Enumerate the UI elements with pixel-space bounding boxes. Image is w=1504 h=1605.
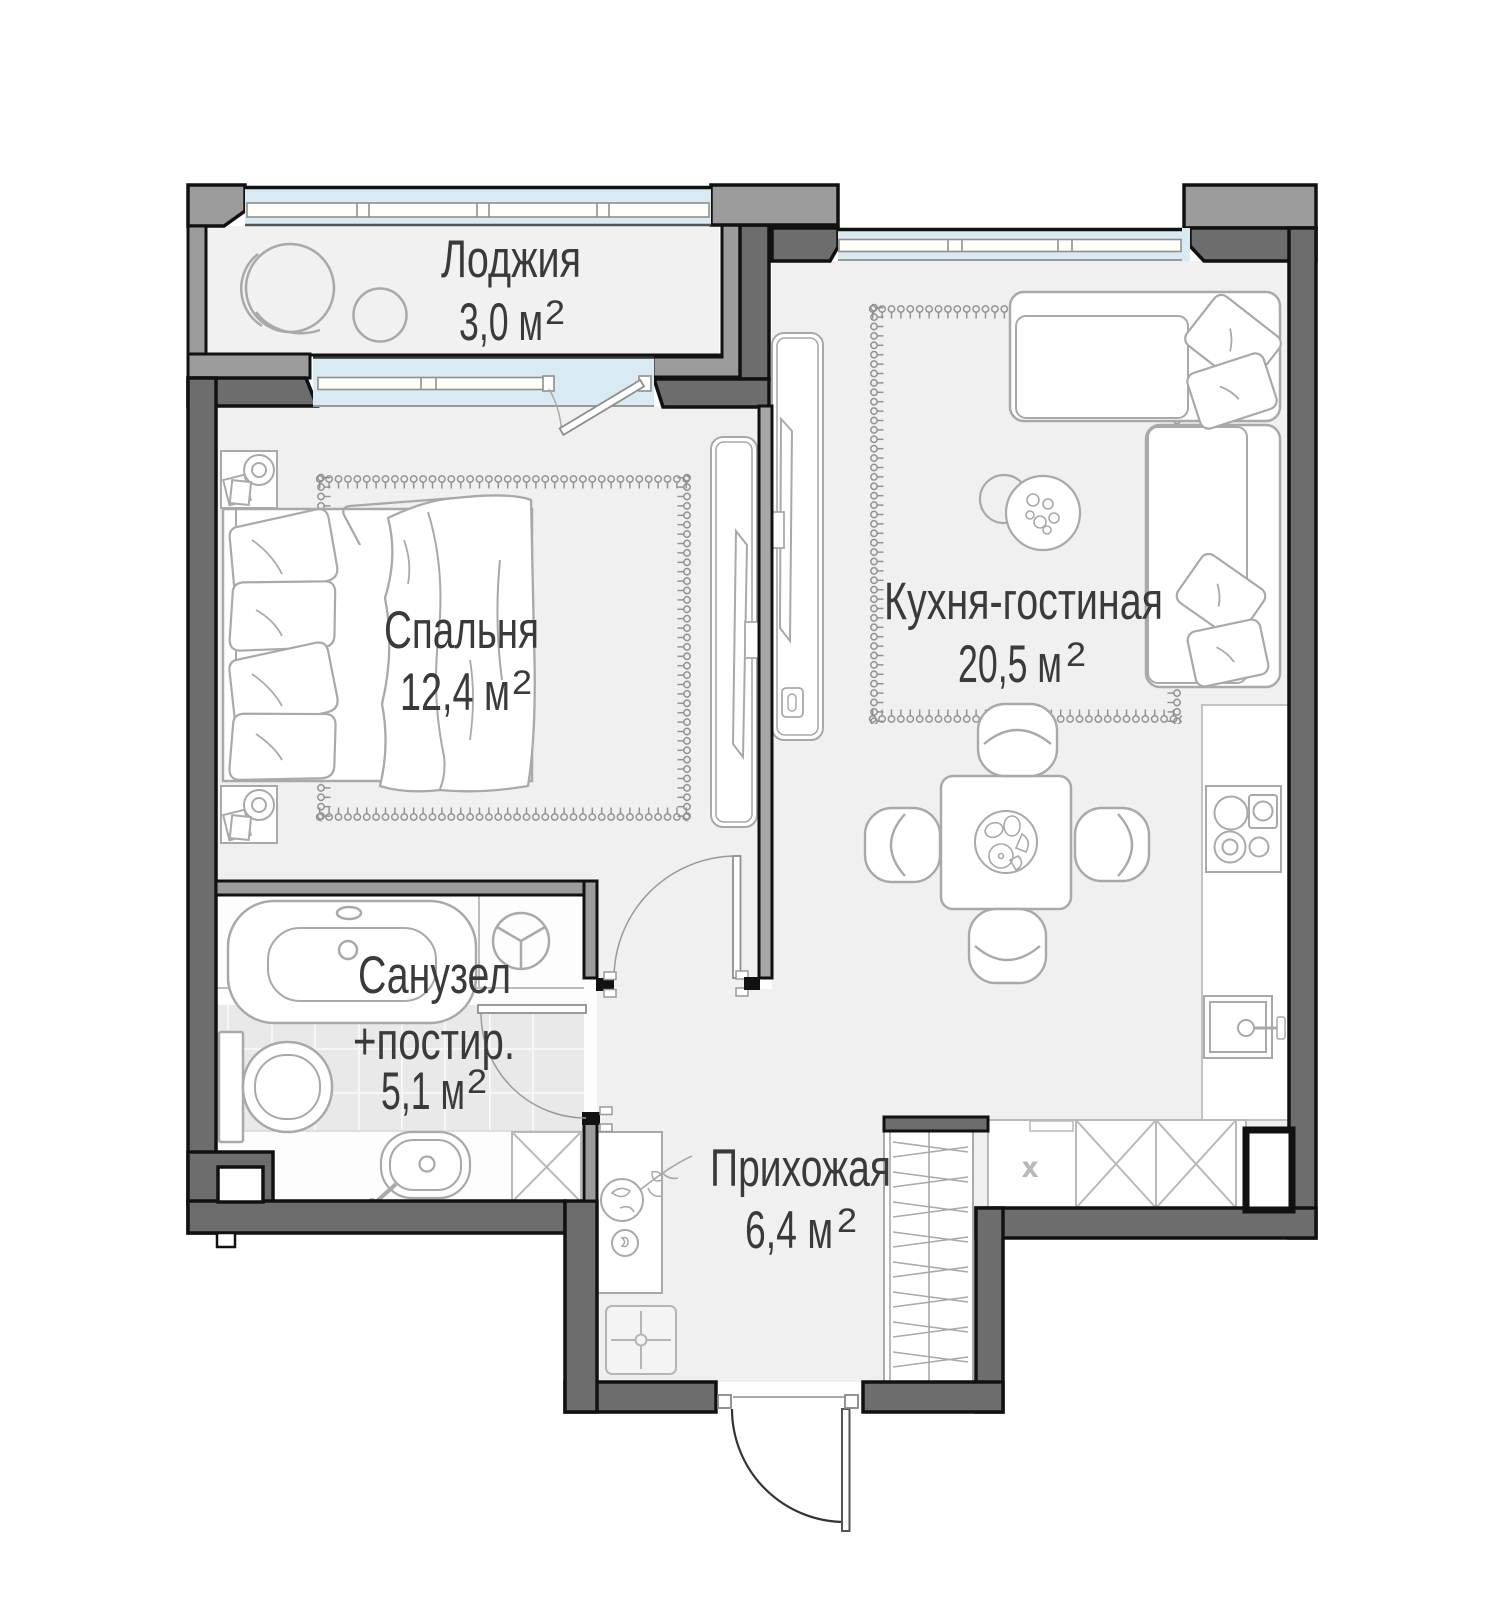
svg-text:12,4 м: 12,4 м (400, 663, 510, 722)
svg-text:5,1 м: 5,1 м (381, 1062, 465, 1121)
svg-text:2: 2 (467, 1063, 487, 1101)
svg-text:Прихожая: Прихожая (710, 1139, 891, 1198)
svg-text:Кухня-гостиная: Кухня-гостиная (884, 572, 1163, 631)
svg-text:Санузел: Санузел (358, 946, 511, 1005)
svg-text:Спальня: Спальня (384, 601, 539, 660)
svg-text:6,4 м: 6,4 м (745, 1201, 833, 1260)
svg-text:Лоджия: Лоджия (441, 230, 581, 289)
svg-text:3,0 м: 3,0 м (459, 293, 543, 352)
svg-text:2: 2 (837, 1202, 857, 1240)
svg-text:20,5 м: 20,5 м (958, 635, 1062, 694)
svg-text:2: 2 (545, 294, 565, 332)
svg-text:x: x (1024, 1152, 1037, 1182)
svg-text:2: 2 (1066, 636, 1086, 674)
svg-text:2: 2 (512, 664, 532, 702)
